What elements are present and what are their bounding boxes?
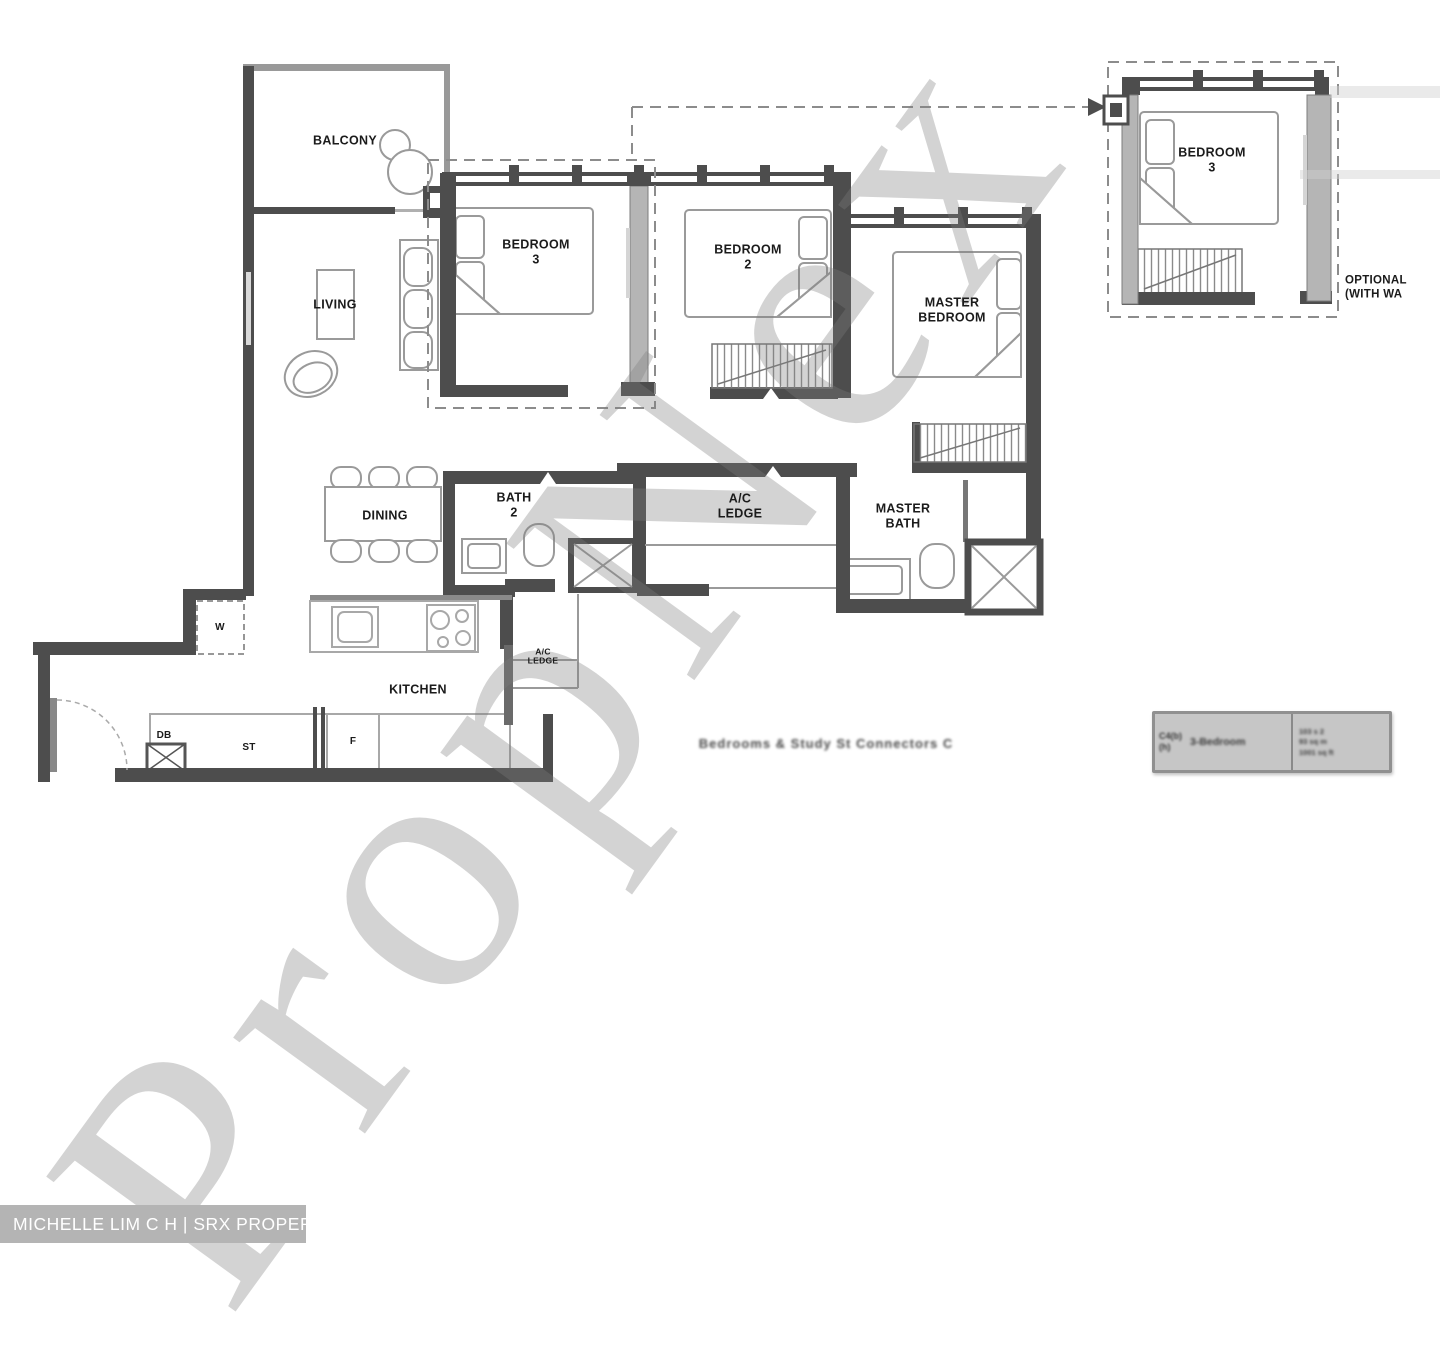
bath2-toilet — [524, 524, 554, 566]
living-window — [246, 272, 251, 345]
master-wardrobe-wall — [912, 462, 1041, 473]
dining-chair — [407, 540, 437, 562]
label-master-bath: MASTER BATH — [876, 501, 931, 531]
unit-type-code: C4(b) — [1159, 731, 1182, 742]
kitchen-back-wall — [310, 595, 512, 600]
plan-caption: Bedrooms & Study St Connectors C — [683, 736, 969, 751]
label-bedroom2: BEDROOM 2 — [714, 242, 781, 272]
balcony-furniture — [380, 130, 432, 194]
unit-area-line: 1001 sq ft — [1299, 748, 1383, 757]
walls — [33, 64, 1041, 782]
kitchen-counter — [310, 601, 478, 652]
label-living: LIVING — [313, 298, 356, 313]
master-window-wall — [851, 224, 1041, 228]
label-optional-note: OPTIONAL (WITH WA — [1345, 274, 1407, 301]
label-master-bedroom: MASTER BEDROOM — [918, 295, 985, 325]
floor-plan-page: PropNex — [0, 0, 1440, 1345]
label-ac-ledge-small: A/C LEDGE — [528, 648, 559, 667]
dining-chair — [331, 467, 361, 489]
unit-info-box: C4(b) (h) 3-Bedroom 103 s 2 93 sq m 1001… — [1152, 711, 1392, 773]
label-balcony: BALCONY — [313, 134, 377, 149]
label-kitchen: KITCHEN — [389, 683, 447, 698]
bottom-cabinets — [150, 714, 510, 769]
label-optional-bedroom3: BEDROOM 3 — [1178, 145, 1245, 175]
label-db: DB — [157, 730, 172, 742]
floor-plan-drawing — [0, 0, 1440, 1345]
bedroom3-bottom-wall — [440, 385, 568, 397]
corridor-wall — [617, 463, 857, 477]
dining-chair — [407, 467, 437, 489]
unit-area-line: 93 sq m — [1299, 737, 1383, 746]
bedroom3-left-wall — [440, 173, 456, 395]
label-store: ST — [242, 742, 255, 754]
master-bath-fixtures — [838, 544, 954, 601]
unit-area-line: 103 s 2 — [1299, 727, 1383, 736]
bottom-wall — [115, 768, 553, 782]
gray-walls — [626, 186, 648, 384]
bedroom2-wardrobe — [712, 344, 832, 388]
entry-left-wall — [38, 642, 50, 782]
master-bath-partition — [963, 480, 968, 542]
scan-streak — [1300, 170, 1440, 179]
bedroom2-right-wall — [833, 186, 851, 398]
master-shower — [968, 542, 1040, 612]
optional-wardrobe — [1138, 249, 1242, 293]
label-dining: DINING — [362, 509, 408, 524]
dining-chair — [369, 540, 399, 562]
unit-area-cell: 103 s 2 93 sq m 1001 sq ft — [1293, 714, 1389, 770]
label-bedroom3: BEDROOM 3 — [502, 237, 569, 267]
scan-streak — [1330, 86, 1440, 98]
master-bath-left-wall — [836, 477, 850, 613]
master-toilet — [920, 544, 954, 588]
unit-type-name: 3-Bedroom — [1190, 736, 1245, 748]
dining-chair — [369, 467, 399, 489]
label-fridge: F — [350, 736, 356, 748]
agent-watermark-bar: MICHELLE LIM C H | SRX PROPERTY — [0, 1205, 306, 1243]
bath2-left-wall — [443, 471, 455, 598]
label-washer: W — [215, 622, 225, 634]
entry-door — [50, 698, 127, 772]
ac-ledge-lines — [513, 545, 836, 688]
label-bath2: BATH 2 — [497, 490, 532, 520]
label-ac-ledge: A/C LEDGE — [718, 491, 763, 521]
master-bath-bottom-wall — [836, 599, 972, 613]
storage-counter — [150, 714, 510, 769]
bath2-shower — [571, 541, 635, 590]
living-front-wall — [243, 207, 395, 214]
dining-chair — [331, 540, 361, 562]
balcony-top-wall — [243, 64, 449, 71]
bath2-fixtures — [462, 524, 554, 573]
unit-type-code2: (h) — [1159, 742, 1182, 753]
armchair — [277, 343, 345, 406]
master-window-wall — [851, 214, 1041, 218]
living-furniture — [277, 240, 438, 405]
unit-type-cell: C4(b) (h) 3-Bedroom — [1155, 714, 1293, 770]
optional-small-box — [1104, 96, 1128, 124]
db-box — [147, 744, 185, 771]
bedroom3-gray-wall — [630, 186, 648, 384]
